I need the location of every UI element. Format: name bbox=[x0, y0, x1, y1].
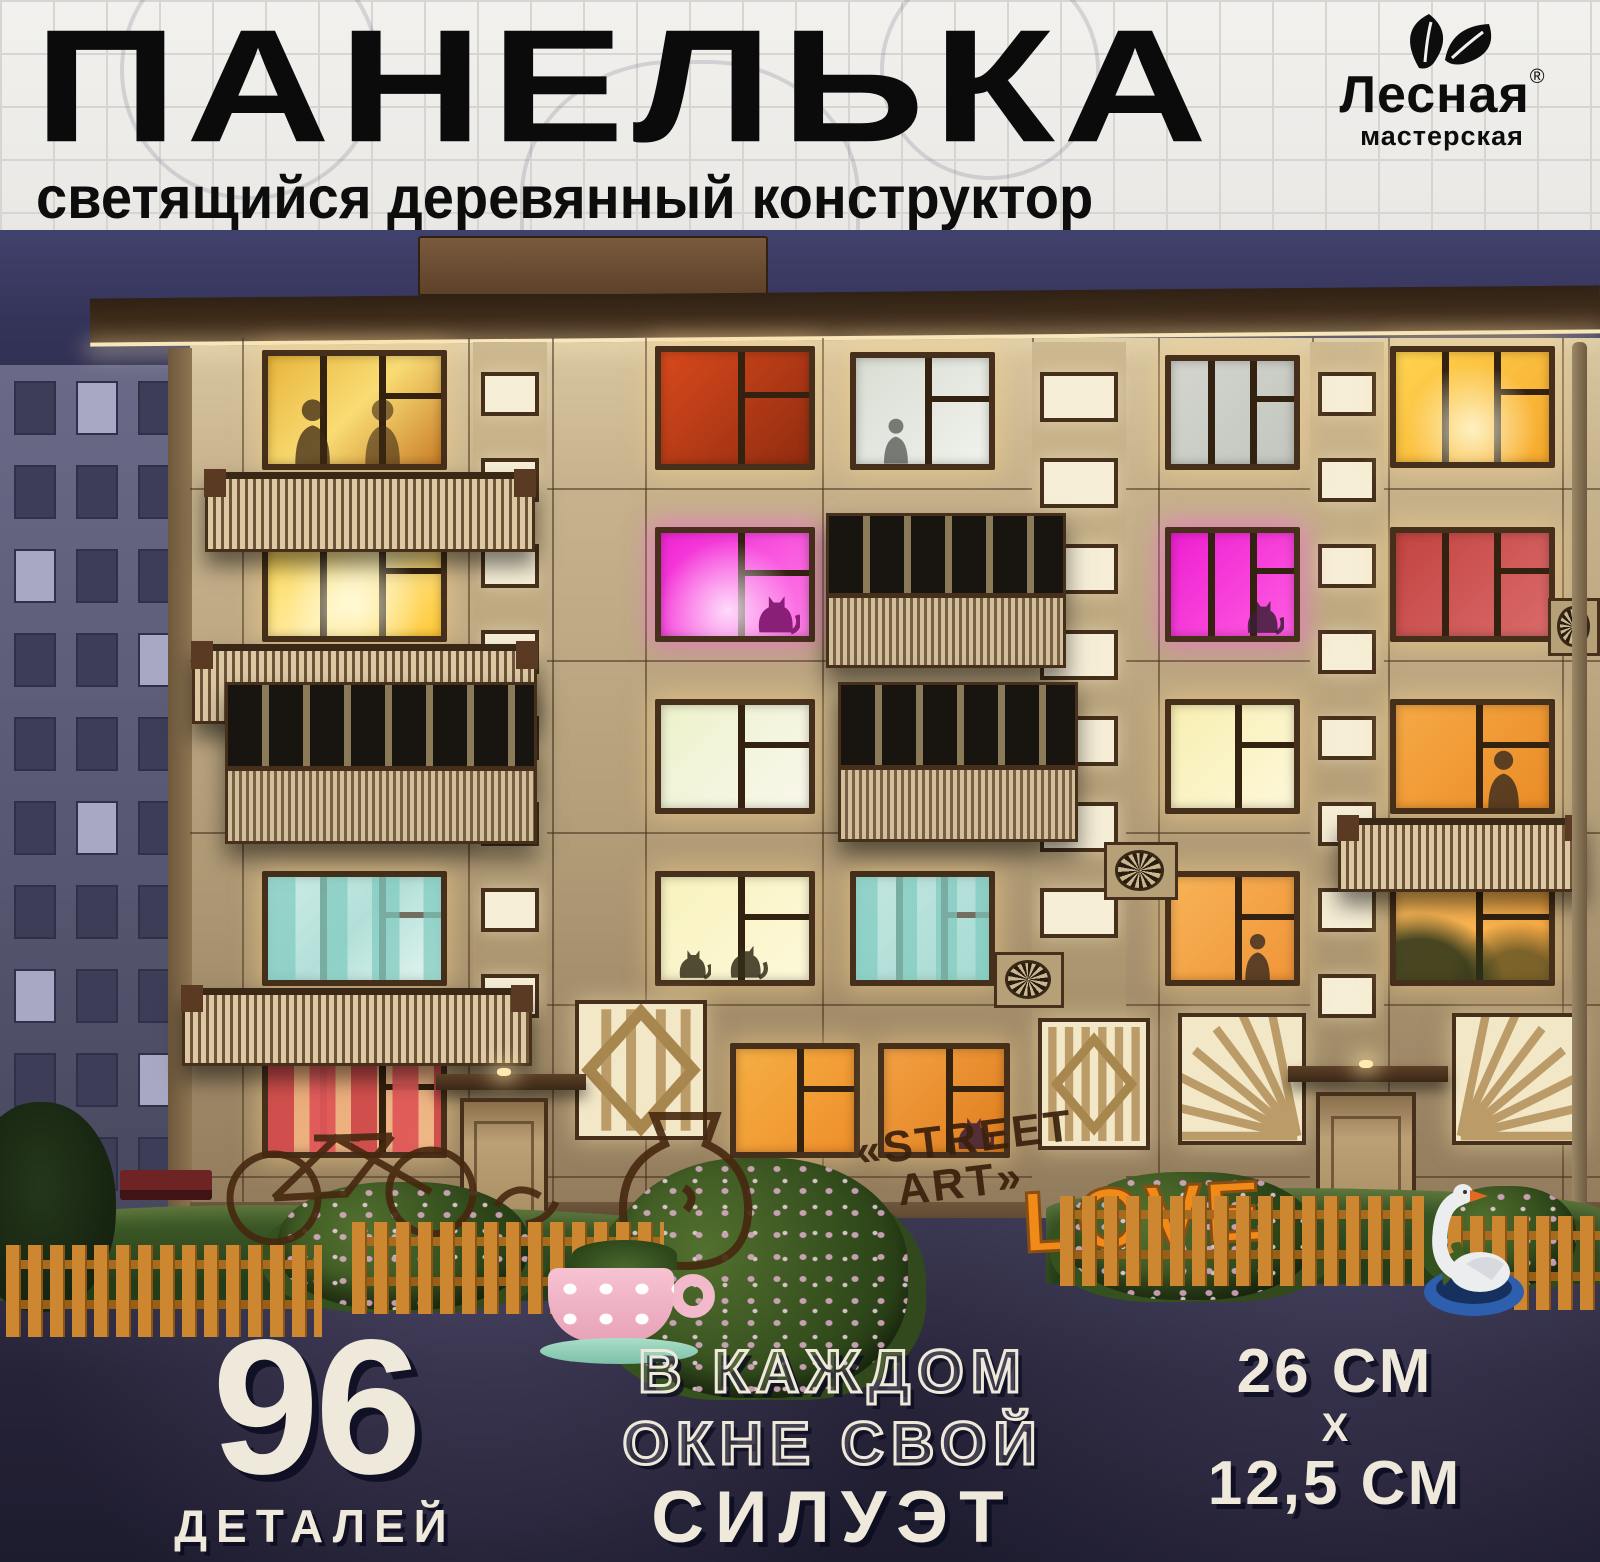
window-sash-bar bbox=[379, 568, 441, 574]
person-silhouette bbox=[1233, 908, 1282, 980]
stairwell-window bbox=[1040, 372, 1118, 422]
cyan-curtains bbox=[856, 877, 989, 980]
glazed-balcony-parapet bbox=[829, 598, 1063, 665]
background-building-window bbox=[14, 465, 56, 519]
window-sash-bar bbox=[738, 392, 809, 398]
window-sash-bar bbox=[738, 705, 745, 808]
entrance-canopy bbox=[1288, 1066, 1448, 1082]
teacup-cup bbox=[548, 1268, 674, 1342]
cat-silhouette bbox=[673, 937, 711, 980]
apartment-window bbox=[655, 527, 815, 642]
balcony-corner-block bbox=[511, 985, 533, 1012]
product-subtitle: светящийся деревянный конструктор bbox=[36, 164, 1093, 230]
balcony-corner-block bbox=[1337, 815, 1359, 841]
apartment-window bbox=[1165, 355, 1300, 470]
stairwell-window bbox=[481, 888, 539, 932]
fan-blades-icon bbox=[1115, 850, 1164, 891]
balcony-parapet bbox=[182, 988, 532, 1066]
window-sash-bar bbox=[925, 396, 989, 402]
window-sash-bar bbox=[797, 1086, 854, 1092]
background-building-window bbox=[14, 549, 56, 603]
window-sash-bar bbox=[379, 877, 386, 980]
people-silhouettes bbox=[278, 393, 416, 464]
balcony-parapet bbox=[1338, 818, 1586, 892]
carved-screen-sunburst bbox=[1178, 1013, 1306, 1145]
panel-seam-vertical bbox=[1158, 338, 1160, 1232]
window-sash-bar bbox=[896, 877, 903, 980]
window-sash-bar bbox=[1476, 877, 1483, 980]
dimension-x: х bbox=[1140, 1406, 1530, 1450]
brand-name: Лесная bbox=[1339, 66, 1529, 124]
window-sash-bar bbox=[1250, 568, 1294, 574]
plant-silhouette bbox=[1396, 877, 1549, 980]
feature-line2: ОКНЕ СВОЙ bbox=[508, 1408, 1158, 1480]
leaves-icon bbox=[1367, 10, 1517, 72]
trademark-symbol: ® bbox=[1530, 66, 1545, 88]
balcony-corner-block bbox=[204, 469, 226, 497]
window-sash-bar bbox=[1235, 742, 1294, 748]
dimension-height: 12,5 см bbox=[1140, 1450, 1530, 1518]
window-sash-bar bbox=[1476, 914, 1549, 920]
product-poster: ПАНЕЛЬКА светящийся деревянный конструкт… bbox=[0, 0, 1600, 1562]
stairwell-window bbox=[1318, 458, 1376, 502]
fan-blades-icon bbox=[1005, 960, 1051, 999]
apartment-window bbox=[1390, 699, 1555, 814]
ventilation-fan-box bbox=[1104, 842, 1178, 900]
teacup-handle bbox=[671, 1274, 715, 1318]
apartment-window bbox=[1165, 699, 1300, 814]
entrance-light bbox=[1359, 1060, 1373, 1068]
brand-logo: Лесная® мастерская bbox=[1312, 10, 1572, 152]
balcony-corner-block bbox=[181, 985, 203, 1012]
cat-silhouette bbox=[723, 931, 767, 980]
glazed-balcony-windows bbox=[829, 516, 1063, 598]
window-sash-bar bbox=[1494, 352, 1501, 462]
dimension-width: 26 см bbox=[1140, 1338, 1530, 1406]
glazed-balcony bbox=[826, 513, 1066, 668]
stairwell-window bbox=[481, 372, 539, 416]
window-sash-bar bbox=[941, 912, 989, 918]
apartment-window bbox=[1390, 527, 1555, 642]
apartment-window bbox=[655, 346, 815, 470]
background-building-window bbox=[14, 381, 56, 435]
window-sash-bar bbox=[1250, 396, 1294, 402]
building-side-edge bbox=[168, 348, 192, 1238]
feature-text-block: В КАЖДОМ ОКНЕ СВОЙ СИЛУЭТ bbox=[508, 1336, 1158, 1557]
background-building-window bbox=[76, 465, 118, 519]
window-sash-bar bbox=[1442, 352, 1449, 462]
background-building-window bbox=[14, 885, 56, 939]
picket-fence bbox=[1060, 1196, 1424, 1286]
cyan-curtains bbox=[268, 877, 441, 980]
apartment-window bbox=[655, 871, 815, 986]
background-building-window bbox=[76, 549, 118, 603]
window-sash-bar bbox=[1494, 533, 1501, 636]
window-sash-bar bbox=[738, 914, 809, 920]
apartment-window bbox=[262, 871, 447, 986]
window-light-glow bbox=[1396, 352, 1549, 462]
apartment-window bbox=[1165, 871, 1300, 986]
glazed-balcony bbox=[225, 682, 537, 844]
window-sash-bar bbox=[738, 570, 809, 576]
window-sash-bar bbox=[1494, 389, 1549, 395]
product-photo-scene: «STREET ART» LOVE 96 ДЕТАЛЕЙ В КАЖДОМ ОК… bbox=[0, 230, 1600, 1562]
glazed-balcony bbox=[838, 682, 1078, 842]
parts-label: ДЕТАЛЕЙ bbox=[120, 1499, 510, 1553]
drainpipe bbox=[1572, 342, 1587, 1234]
background-building-window bbox=[14, 633, 56, 687]
balcony-corner-block bbox=[516, 641, 538, 669]
glazed-balcony-windows bbox=[841, 685, 1075, 770]
window-sash-bar bbox=[1494, 568, 1549, 574]
balcony-corner-block bbox=[191, 641, 213, 669]
feature-line3: СИЛУЭТ bbox=[508, 1480, 1158, 1557]
window-sash-bar bbox=[946, 1086, 1004, 1092]
cat-silhouette bbox=[1240, 579, 1284, 636]
chimney bbox=[418, 236, 768, 296]
background-building-window bbox=[76, 969, 118, 1023]
background-building-window bbox=[14, 1053, 56, 1107]
background-building-window bbox=[76, 381, 118, 435]
window-sash-bar bbox=[797, 1049, 804, 1152]
stairwell-window bbox=[1040, 458, 1118, 508]
fence-pickets bbox=[1060, 1196, 1424, 1286]
header: ПАНЕЛЬКА светящийся деревянный конструкт… bbox=[0, 0, 1600, 230]
product-title: ПАНЕЛЬКА bbox=[34, 6, 1329, 167]
glazed-balcony-parapet bbox=[228, 771, 534, 841]
window-sash-bar bbox=[1208, 361, 1215, 464]
apartment-window bbox=[262, 350, 447, 470]
entrance-light bbox=[497, 1068, 511, 1076]
ventilation-fan-box bbox=[994, 952, 1064, 1008]
apartment-window bbox=[850, 352, 995, 470]
background-building-window bbox=[76, 801, 118, 855]
apartment-window bbox=[1165, 527, 1300, 642]
window-sash-bar bbox=[1442, 533, 1449, 636]
glazed-balcony-windows bbox=[228, 685, 534, 771]
parts-count: 96 bbox=[120, 1328, 510, 1485]
apartment-window bbox=[1390, 346, 1555, 468]
background-building-window bbox=[76, 1053, 118, 1107]
person-silhouette bbox=[872, 400, 920, 464]
window-sash-bar bbox=[1235, 705, 1242, 808]
balcony-parapet bbox=[205, 472, 535, 552]
stairwell-window bbox=[1318, 630, 1376, 674]
stairwell-window bbox=[1318, 716, 1376, 760]
stairwell-window bbox=[1318, 372, 1376, 416]
window-sash-bar bbox=[925, 358, 932, 464]
apartment-window bbox=[850, 871, 995, 986]
brand-name-row: Лесная® bbox=[1312, 72, 1572, 119]
glazed-balcony-parapet bbox=[841, 770, 1075, 839]
carved-screen-sunburst bbox=[1452, 1013, 1580, 1145]
feature-line1: В КАЖДОМ bbox=[508, 1336, 1158, 1408]
window-sash-bar bbox=[320, 877, 327, 980]
parts-count-block: 96 ДЕТАЛЕЙ bbox=[120, 1328, 510, 1553]
apartment-window bbox=[655, 699, 815, 814]
stairwell-window bbox=[1318, 888, 1376, 932]
window-sash-bar bbox=[379, 912, 441, 918]
background-building-window bbox=[76, 633, 118, 687]
stairwell-window bbox=[1318, 544, 1376, 588]
background-building-window bbox=[14, 717, 56, 771]
brand-name-sub: мастерская bbox=[1312, 121, 1572, 152]
background-building-window bbox=[76, 885, 118, 939]
swan-planter bbox=[1414, 1160, 1534, 1320]
window-sash-bar bbox=[941, 877, 948, 980]
window-sash-bar bbox=[738, 352, 745, 464]
balcony-corner-block bbox=[514, 469, 536, 497]
background-building-window bbox=[76, 717, 118, 771]
dimensions-block: 26 см х 12,5 см bbox=[1140, 1338, 1530, 1518]
stairwell-window bbox=[1318, 974, 1376, 1018]
window-sash-bar bbox=[738, 533, 745, 636]
person-silhouette bbox=[1473, 736, 1534, 808]
teacup-grass bbox=[572, 1240, 677, 1270]
background-building-window bbox=[14, 801, 56, 855]
cat-silhouette bbox=[750, 582, 800, 636]
background-building-window bbox=[14, 969, 56, 1023]
window-sash-bar bbox=[1250, 361, 1257, 464]
window-sash-bar bbox=[1208, 533, 1215, 636]
window-sash-bar bbox=[738, 742, 809, 748]
